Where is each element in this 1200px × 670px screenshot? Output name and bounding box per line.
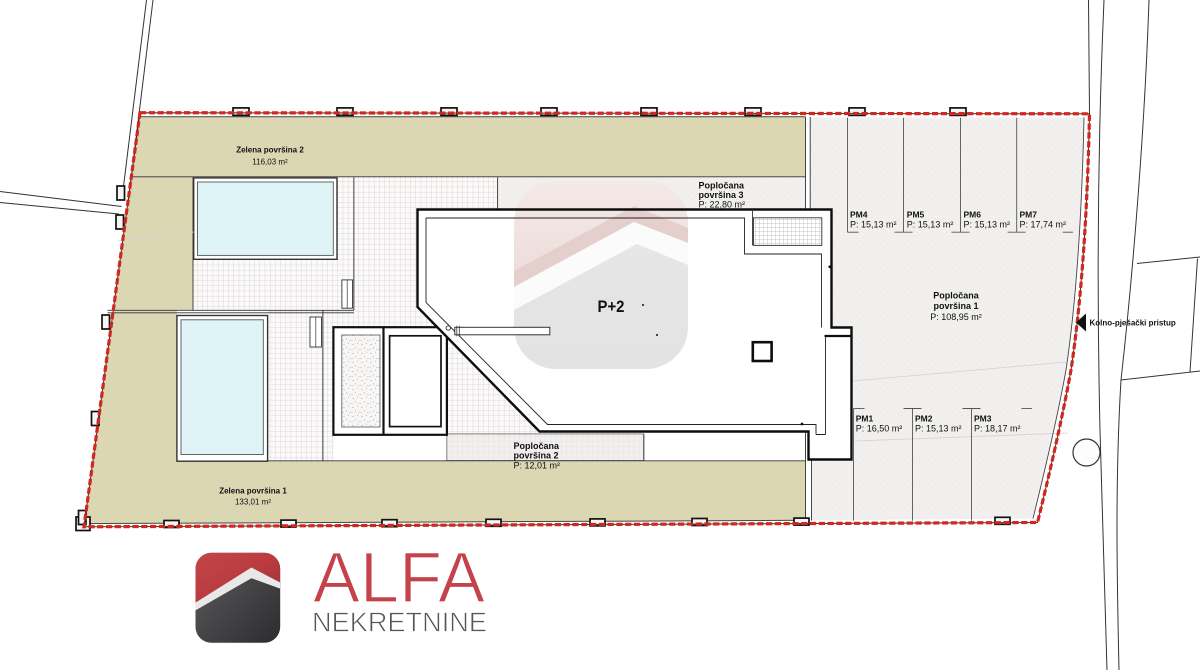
svg-text:Popločana: Popločana [514,441,561,451]
svg-text:P: 17,74 m²: P: 17,74 m² [1020,220,1067,230]
svg-text:PM1: PM1 [856,414,874,424]
svg-text:P: 16,50 m²: P: 16,50 m² [856,424,903,434]
svg-text:133,01 m²: 133,01 m² [235,498,271,507]
svg-text:Zelena površina 1: Zelena površina 1 [219,487,287,496]
svg-text:PM4: PM4 [850,210,868,220]
svg-text:površina 2: površina 2 [514,451,559,461]
svg-text:P: 12,01 m²: P: 12,01 m² [514,461,561,471]
svg-text:P: 15,13 m²: P: 15,13 m² [850,220,897,230]
svg-text:116,03 m²: 116,03 m² [252,158,288,167]
svg-text:Zelena površina 2: Zelena površina 2 [236,146,304,155]
svg-text:PM2: PM2 [915,414,933,424]
svg-text:površina 1: površina 1 [933,301,978,311]
svg-text:P: 18,17 m²: P: 18,17 m² [974,424,1021,434]
svg-text:Popločana: Popločana [699,181,746,191]
svg-text:Kolno-pješački pristup: Kolno-pješački pristup [1090,319,1176,328]
svg-text:P+2: P+2 [598,297,625,316]
svg-text:PM7: PM7 [1020,210,1038,220]
svg-text:P: 22,80 m²: P: 22,80 m² [699,200,746,210]
svg-text:PM6: PM6 [964,210,982,220]
svg-text:P: 15,13 m²: P: 15,13 m² [907,220,954,230]
svg-text:PM5: PM5 [907,210,925,220]
svg-text:površina 3: površina 3 [699,190,744,200]
svg-text:Popločana: Popločana [933,291,980,301]
svg-text:NEKRETNINE: NEKRETNINE [312,607,487,638]
svg-text:P: 15,13 m²: P: 15,13 m² [915,424,962,434]
svg-text:PM3: PM3 [974,414,992,424]
svg-text:P: 15,13 m²: P: 15,13 m² [964,220,1011,230]
svg-text:P: 108,95 m²: P: 108,95 m² [930,312,982,322]
